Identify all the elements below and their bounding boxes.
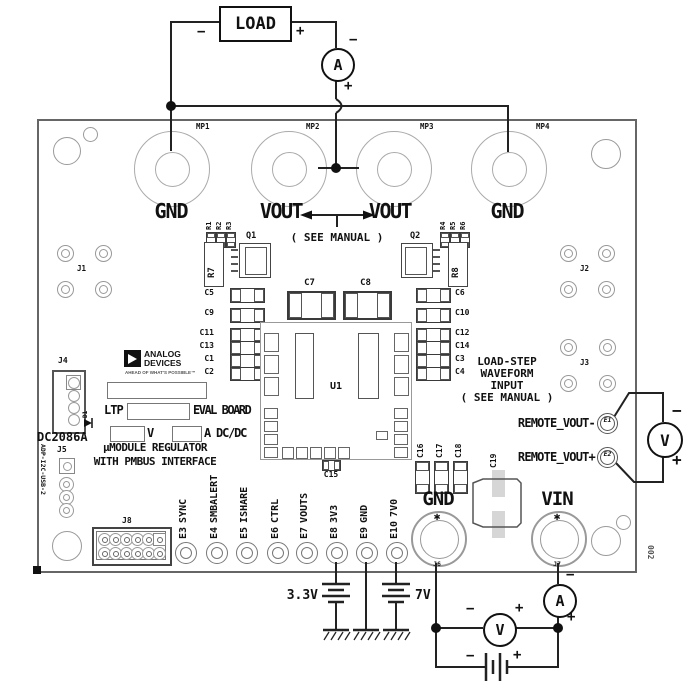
j5-label: J5 [57,446,67,454]
loadstep-line1: LOAD-STEP [457,356,557,368]
cap-label: C14 [455,342,469,350]
rail-33-label: 3.3V [281,589,318,603]
input-battery-plus: + [513,647,521,663]
cap-part [230,308,265,323]
cap-label: C1 [184,355,214,363]
tp-label-e3: E3SYNC [179,439,190,539]
q1-inner [245,247,267,275]
schematic-page: MP1 MP2 MP3 MP4 GND VOUT VOUT GND ( SEE … [0,0,700,686]
mounting-hole-small [83,127,98,142]
c19-pad [492,470,505,497]
rail-7-label: 7V [415,589,431,603]
cap-part [416,367,451,381]
j7-label: J7 [547,561,567,568]
tp-label-e5: E5ISHARE [240,439,251,539]
remote-voltmeter-minus: − [672,401,682,420]
mounting-hole [591,139,621,169]
c18-label: C18 [455,434,463,458]
cap-label: C12 [455,329,469,337]
r4-label: R4 [440,210,447,230]
input-voltmeter: V [483,613,517,647]
c19-pad [492,511,505,538]
mounting-hole-small [616,515,631,530]
mounting-hole [53,137,81,165]
c8-label: C8 [343,279,388,288]
input-ammeter-minus: − [566,567,574,583]
mp2-terminal [251,131,327,207]
j4-label: J4 [58,357,68,365]
j8-label: J8 [122,517,132,525]
adi-logo-mark [124,350,141,367]
loadstep-line2: WAVEFORM [457,368,557,380]
e1-testpoint: E1 [597,413,618,434]
eval-board-label: EVAL BOARD [193,404,250,417]
cap-part [416,328,451,342]
load-box: LOAD [219,6,292,42]
load-minus-sign: − [197,24,205,40]
u1-label: U1 [330,382,342,393]
adi-tagline: AHEAD OF WHAT'S POSSIBLE™ [125,371,196,376]
c7-label: C7 [287,279,332,288]
r7-label: R7 [208,248,217,278]
writein-box [107,382,207,399]
r5-label: R5 [450,210,457,230]
r3-label: R3 [226,210,233,230]
tp-label-e8: E83V3 [330,439,341,539]
r1-label: R1 [206,210,213,230]
mp4-ref: MP4 [536,123,550,131]
tp-label-e7: E7VOUTS [300,439,311,539]
load-label: LOAD [235,14,276,34]
ground-hatches [324,632,410,640]
cap-label: C5 [184,289,214,297]
q1-label: Q1 [246,232,256,241]
mounting-hole [591,526,621,556]
j6-label: J6 [427,561,447,568]
mp1-label: GND [136,201,206,222]
ltp-label: LTP [104,404,123,417]
vin-input-label: VIN [522,490,592,510]
mp3-ref: MP3 [420,123,434,131]
input-voltmeter-plus: + [515,600,523,616]
r3-part [226,232,236,248]
top-ammeter-minus: − [349,32,357,48]
load-plus-sign: + [296,23,304,39]
remote-vout-minus-label: REMOTE_VOUT- [487,417,595,430]
u1-pad-l [295,333,314,399]
loadstep-line4: ( SEE MANUAL ) [457,392,557,404]
cap-label: C13 [184,342,214,350]
tp-label-e4: E4SMBALERT [210,439,221,539]
remote-vout-plus-label: REMOTE_VOUT+ [487,451,595,464]
mp4-terminal [471,131,547,207]
loadstep-line3: INPUT [457,380,557,392]
j2-label: J2 [580,265,589,273]
top-ammeter-plus: + [344,78,352,94]
c17-label: C17 [436,434,444,458]
input-battery-minus: − [466,648,474,664]
r2-label: R2 [216,210,223,230]
cap-part [416,341,451,355]
u1-pad-r [358,333,379,399]
cap-part [416,354,451,368]
input-ammeter-plus: + [567,609,575,625]
c7-part [287,291,336,320]
c16-label: C16 [417,434,425,458]
cap-label: C10 [455,309,469,317]
dongle-label: ADP-I2C-USB-2 [39,444,46,520]
adi-logo-name2: DEVICES [144,359,181,368]
input-voltmeter-minus: − [466,601,474,617]
volts-suffix: V [147,427,154,440]
c8-part [343,291,392,320]
e2-testpoint: E2 [597,447,618,468]
tp-label-e10: E107V0 [390,439,401,539]
vin-star-icon: ✱ [550,511,564,523]
tp-label-e9: E9GND [360,439,371,539]
cap-label: C11 [184,329,214,337]
r6-label: R6 [460,210,467,230]
mp3-terminal [356,131,432,207]
corner-fiducial [33,566,41,574]
gnd-star-icon: ✱ [430,511,444,523]
rev-label: 002 [646,545,654,565]
amps-suffix: A DC/DC [204,427,246,440]
top-ammeter: A [321,48,355,82]
d1-label: D1 [83,406,89,418]
remote-voltmeter-plus: + [672,450,682,469]
cap-part [416,288,451,303]
mp1-terminal [134,131,210,207]
mp1-ref: MP1 [196,123,210,131]
j3-label: J3 [580,359,589,367]
writein-box [127,403,190,420]
mp4-label: GND [472,201,542,222]
q2-pins [433,249,440,273]
mounting-hole [52,531,82,561]
writein-box [110,426,145,442]
mp2-label: VOUT [246,201,316,222]
q1-pins [231,249,238,273]
q2-inner [405,247,427,275]
mp2-ref: MP2 [306,123,320,131]
cap-part [416,308,451,323]
adi-triangle-icon [128,354,137,364]
cap-part [230,288,265,303]
see-manual-top: ( SEE MANUAL ) [277,232,397,244]
cap-label: C9 [184,309,214,317]
q2-label: Q2 [410,232,420,241]
cap-label: C6 [455,289,465,297]
tp-label-e6: E6CTRL [271,439,282,539]
r8-label: R8 [452,248,461,278]
mp3-label: VOUT [355,201,425,222]
j1-label: J1 [77,265,86,273]
gnd-input-label: GND [403,490,473,510]
